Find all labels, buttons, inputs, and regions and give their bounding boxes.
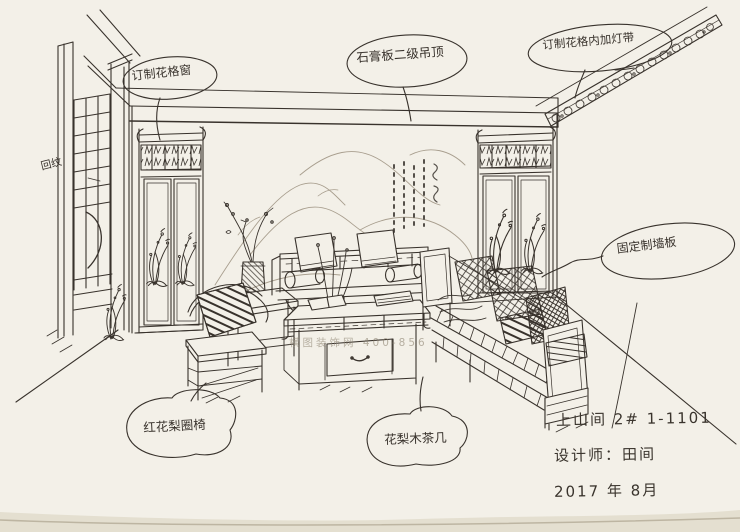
sketch-page: 订制花格窗 石膏板二级吊顶 订制花格内加灯带 固定制墙板 红花梨圈椅 花梨木茶几… <box>0 0 740 532</box>
mural-inscription <box>394 160 438 232</box>
daybed <box>420 248 588 432</box>
title-designer: 设计师：田间 <box>554 443 656 466</box>
left-cabinet <box>135 127 205 333</box>
annotation-label-tea-table: 花梨木茶几 <box>384 432 447 447</box>
left-wall <box>16 42 132 402</box>
title-project: 上山间 2# 1-1101 <box>556 407 712 431</box>
watermark-text: 横图装饰网 400-856 <box>289 335 428 350</box>
paper-edge <box>0 510 740 532</box>
title-date: 2017 年 8月 <box>554 479 660 502</box>
annotation-label-armchair: 红花梨圈椅 <box>143 419 206 435</box>
